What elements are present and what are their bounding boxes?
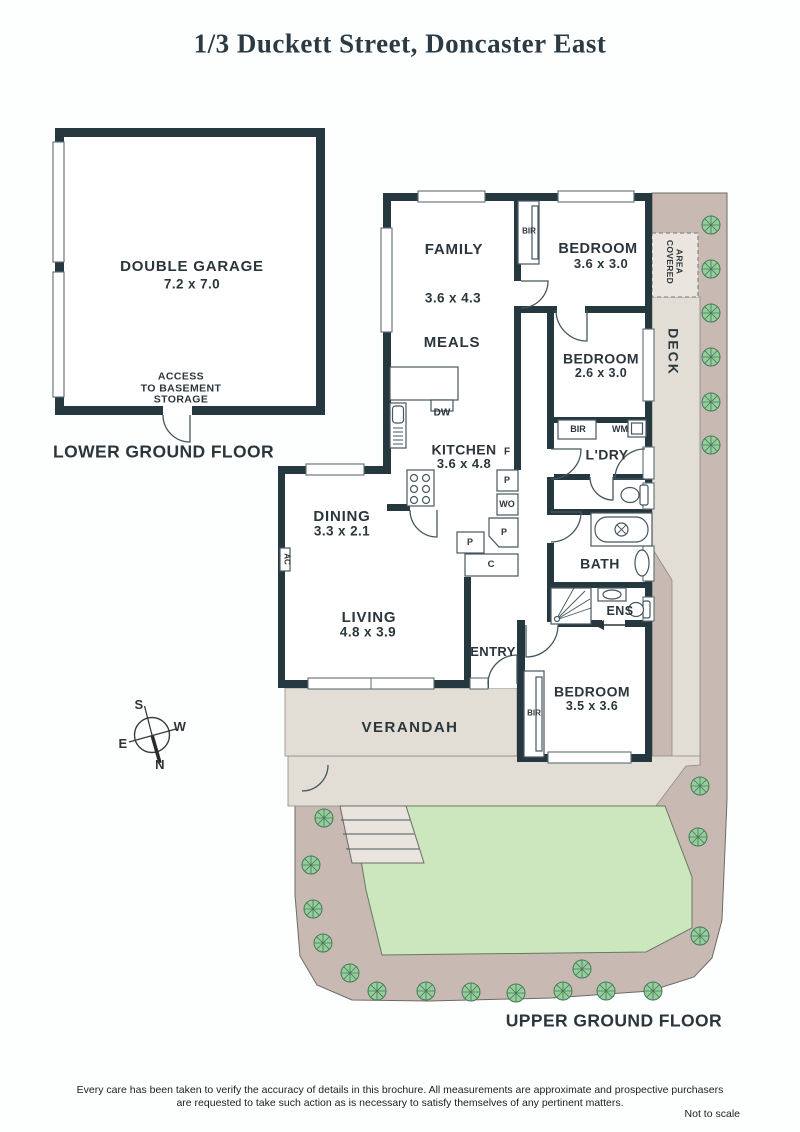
window — [548, 752, 631, 763]
tree-icon — [702, 436, 720, 454]
window — [470, 678, 488, 689]
burner — [411, 486, 418, 493]
tree-icon — [597, 982, 615, 1000]
tree-icon — [314, 934, 332, 952]
window — [418, 191, 485, 202]
burner — [411, 497, 418, 504]
pantry-label: P — [504, 476, 510, 486]
bir-label: BIR — [522, 228, 536, 237]
tree-icon — [689, 828, 707, 846]
tree-icon — [417, 982, 435, 1000]
garden-path — [288, 756, 700, 806]
ac-label: AC — [282, 553, 291, 565]
garage-window — [53, 142, 64, 262]
washing-machine-drum — [632, 423, 643, 434]
sink-bowl — [393, 406, 404, 423]
burner — [423, 497, 430, 504]
tree-icon — [507, 984, 525, 1002]
room-dims-bedroom3: 3.5 x 3.6 — [566, 700, 618, 714]
wall-segment — [464, 577, 471, 688]
tree-icon — [368, 982, 386, 1000]
fridge-label: F — [504, 447, 510, 458]
tree-icon — [573, 960, 591, 978]
wall-segment — [554, 582, 645, 588]
pantry-label: P — [501, 528, 507, 538]
room-dims-bedroom2: 2.6 x 3.0 — [575, 367, 627, 381]
lower-floor-label: LOWER GROUND FLOOR — [53, 442, 274, 461]
toilet-bowl — [621, 488, 639, 503]
door-opening — [643, 447, 654, 479]
disclaimer-line2: are requested to take such action as is … — [176, 1097, 623, 1109]
covered-area-line: AREA — [674, 240, 683, 284]
bath-vanity — [635, 550, 649, 576]
tree-icon — [702, 348, 720, 366]
wall-segment — [55, 128, 325, 137]
wall-segment — [547, 313, 554, 421]
wall-segment — [55, 406, 163, 415]
room-label-ens: ENS — [607, 605, 634, 619]
disclaimer-line1: Every care has been taken to verify the … — [77, 1084, 724, 1096]
wall-segment — [316, 128, 325, 415]
tree-icon — [462, 983, 480, 1001]
tree-icon — [304, 900, 322, 918]
covered-area-line: COVERED — [665, 240, 674, 284]
room-dims-kitchen: 3.6 x 4.8 — [437, 457, 491, 471]
access-note-line: ACCESS — [141, 372, 222, 384]
floorplan-page: 1/3 Duckett Street, Doncaster East DOUBL… — [0, 0, 800, 1132]
room-label-meals: MEALS — [424, 335, 481, 352]
room-label-deck: DECK — [665, 328, 680, 376]
tree-icon — [702, 260, 720, 278]
wall-segment — [192, 406, 325, 415]
wm-label: WM — [612, 425, 628, 435]
burner — [411, 475, 418, 482]
wall-segment — [585, 306, 645, 313]
compass-west-label: W — [174, 720, 187, 734]
room-dims-bedroom1: 3.6 x 3.0 — [574, 257, 628, 271]
wall-segment — [514, 306, 521, 470]
room-label-entry: ENTRY — [470, 645, 516, 659]
wall-segment — [278, 466, 285, 688]
room-label-bedroom3: BEDROOM — [554, 684, 630, 699]
wall-segment — [554, 474, 590, 480]
dw-label: DW — [434, 408, 451, 419]
page-title: 1/3 Duckett Street, Doncaster East — [194, 29, 607, 60]
window — [381, 228, 392, 332]
tree-icon — [702, 304, 720, 322]
wall-segment — [547, 421, 554, 449]
ens-basin — [603, 590, 621, 599]
compass-north-label: N — [155, 758, 165, 772]
compass-south-spoke — [145, 706, 153, 735]
upper-floor-label: UPPER GROUND FLOOR — [506, 1011, 722, 1030]
wall-oven-label: WO — [499, 500, 515, 510]
shower-drain — [555, 617, 560, 622]
tree-icon — [315, 809, 333, 827]
compass-south-label: S — [134, 698, 143, 712]
bir-label: BIR — [570, 425, 586, 435]
burner — [423, 475, 430, 482]
access-note-line: STORAGE — [141, 395, 222, 407]
window — [643, 329, 654, 401]
access-note: ACCESS TO BASEMENT STORAGE — [141, 372, 222, 407]
room-label-family: FAMILY — [425, 242, 483, 259]
cupboard-label: C — [488, 560, 495, 570]
window — [558, 191, 634, 202]
room-dims-family: 3.6 x 4.3 — [425, 292, 481, 307]
window — [306, 464, 364, 475]
garage-door-arc — [163, 415, 190, 442]
room-dims-living: 4.8 x 3.9 — [340, 626, 396, 641]
kitchen-bench — [390, 367, 458, 400]
room-label-verandah: VERANDAH — [361, 720, 458, 737]
garage-window — [53, 272, 64, 397]
room-label-laundry: L'DRY — [586, 447, 629, 462]
room-dims-garage: 7.2 x 7.0 — [164, 278, 220, 293]
tree-icon — [554, 982, 572, 1000]
floorplan-drawing — [0, 0, 800, 1132]
tree-icon — [691, 927, 709, 945]
tree-icon — [702, 216, 720, 234]
tree-icon — [691, 777, 709, 795]
room-label-bath: BATH — [580, 556, 620, 571]
wall-segment — [547, 477, 554, 515]
room-label-garage: DOUBLE GARAGE — [120, 259, 264, 276]
tree-icon — [302, 856, 320, 874]
toilet-tank — [640, 485, 648, 505]
tree-icon — [644, 982, 662, 1000]
burner — [423, 486, 430, 493]
room-label-bedroom2: BEDROOM — [563, 351, 639, 366]
bir-label: BIR — [527, 710, 541, 719]
scale-note: Not to scale — [685, 1108, 740, 1120]
compass-east-label: E — [118, 737, 127, 751]
tree-icon — [341, 964, 359, 982]
tree-icon — [702, 393, 720, 411]
house-structure — [278, 191, 654, 763]
pantry-label: P — [467, 538, 473, 548]
room-label-covered-area: COVERED AREA — [665, 240, 684, 284]
room-dims-dining: 3.3 x 2.1 — [314, 525, 370, 540]
compass — [129, 706, 176, 763]
